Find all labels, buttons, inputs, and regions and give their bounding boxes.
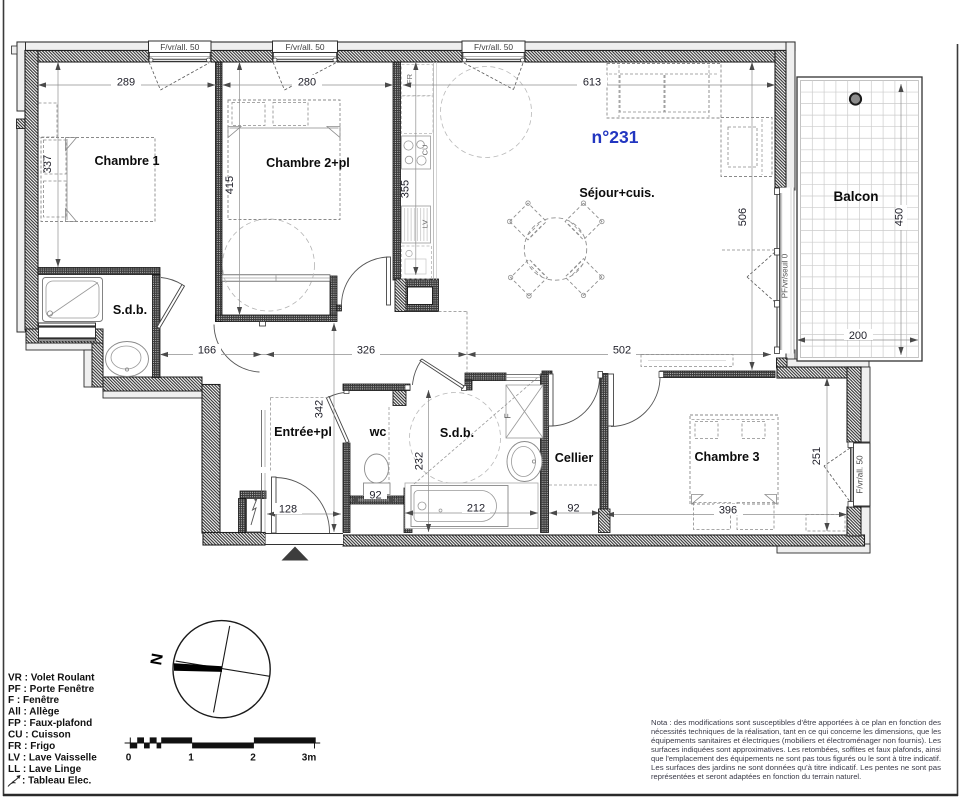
svg-text:337: 337 — [42, 155, 54, 173]
svg-text:n°231: n°231 — [592, 127, 639, 147]
svg-text:LL : Lave Linge: LL : Lave Linge — [8, 764, 82, 775]
svg-text:1: 1 — [188, 753, 194, 764]
svg-text:326: 326 — [357, 345, 375, 357]
svg-text:F : Fenêtre: F : Fenêtre — [8, 695, 60, 706]
svg-text:que l'emplacement des équipeme: que l'emplacement des équipements ne son… — [651, 754, 941, 763]
svg-text:251: 251 — [811, 447, 823, 465]
svg-text:200: 200 — [849, 330, 867, 342]
svg-text:F: F — [503, 413, 513, 418]
svg-text:F/vr/all. 50: F/vr/all. 50 — [160, 42, 199, 52]
svg-text:212: 212 — [467, 503, 485, 515]
svg-text:Chambre 3: Chambre 3 — [694, 450, 759, 464]
svg-text:280: 280 — [298, 77, 316, 89]
svg-text:232: 232 — [414, 452, 426, 470]
svg-text:FP : Faux-plafond: FP : Faux-plafond — [8, 718, 92, 729]
svg-text:Entrée+pl: Entrée+pl — [274, 425, 332, 439]
svg-text:PF : Porte Fenêtre: PF : Porte Fenêtre — [8, 684, 95, 695]
svg-text:2: 2 — [250, 753, 256, 764]
svg-text:Cellier: Cellier — [555, 451, 594, 465]
svg-text:396: 396 — [719, 505, 737, 517]
svg-text:613: 613 — [583, 77, 601, 89]
svg-text:Séjour+cuis.: Séjour+cuis. — [579, 186, 654, 200]
svg-text:506: 506 — [737, 208, 749, 226]
svg-text:VR : Volet Roulant: VR : Volet Roulant — [8, 672, 95, 683]
svg-text:502: 502 — [613, 345, 631, 357]
svg-text:415: 415 — [224, 176, 236, 194]
svg-text:Chambre 1: Chambre 1 — [94, 154, 159, 168]
svg-text:équipements sanitaires et élec: équipements sanitaires et électriques (m… — [651, 736, 941, 745]
svg-text:FR : Frigo: FR : Frigo — [8, 741, 55, 752]
svg-text:92: 92 — [567, 503, 579, 515]
svg-text:surfaces indiquées sont approx: surfaces indiquées sont approximatives. … — [651, 745, 941, 754]
svg-text:92: 92 — [369, 490, 381, 502]
svg-text:PF/vr/seuil 0: PF/vr/seuil 0 — [781, 253, 790, 298]
svg-text:F/vr/all. 50: F/vr/all. 50 — [285, 42, 324, 52]
svg-text:450: 450 — [894, 208, 906, 226]
svg-text:F/vr/all. 50: F/vr/all. 50 — [856, 455, 865, 494]
svg-text:FR: FR — [405, 73, 414, 84]
svg-text:LV : Lave Vaisselle: LV : Lave Vaisselle — [8, 752, 97, 763]
svg-text:Balcon: Balcon — [833, 189, 878, 204]
svg-text:LV: LV — [421, 220, 430, 229]
svg-text:S.d.b.: S.d.b. — [113, 303, 147, 317]
svg-text:166: 166 — [198, 345, 216, 357]
svg-text:128: 128 — [279, 504, 297, 516]
svg-text:CU : Cuisson: CU : Cuisson — [8, 730, 71, 741]
svg-text:: Tableau Elec.: : Tableau Elec. — [22, 775, 92, 786]
svg-text:All : Allège: All : Allège — [8, 707, 60, 718]
svg-text:Les surfaces des jardins ne so: Les surfaces des jardins ne sont données… — [651, 763, 941, 772]
svg-text:représentées et seront adaptée: représentées et seront adaptées en fonct… — [651, 772, 861, 781]
svg-text:289: 289 — [117, 77, 135, 89]
svg-text:nécessités techniques de la ré: nécessités techniques de la réalisation,… — [651, 727, 941, 736]
svg-text:F/vr/all. 50: F/vr/all. 50 — [474, 42, 513, 52]
svg-text:Chambre 2+pl: Chambre 2+pl — [266, 156, 350, 170]
svg-text:0: 0 — [126, 753, 132, 764]
svg-text:355: 355 — [400, 180, 412, 198]
svg-text:S.d.b.: S.d.b. — [440, 426, 474, 440]
svg-text:Nota : des modifications sont: Nota : des modifications sont susceptibl… — [651, 718, 941, 727]
svg-text:3m: 3m — [302, 753, 317, 764]
svg-text:342: 342 — [314, 400, 326, 418]
svg-text:CU: CU — [421, 145, 430, 156]
svg-text:wc: wc — [369, 425, 387, 439]
